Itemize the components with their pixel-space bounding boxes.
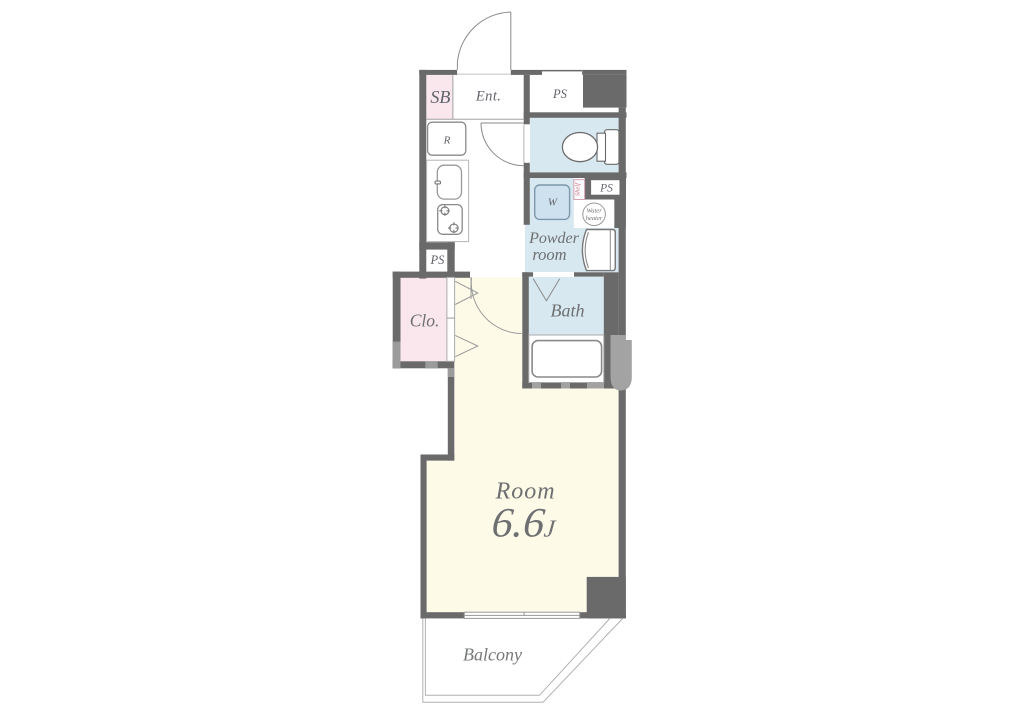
svg-text:Water: Water (586, 207, 602, 214)
svg-text:room: room (532, 245, 566, 264)
svg-text:PS: PS (552, 87, 568, 101)
svg-text:PS: PS (599, 183, 613, 195)
svg-text:Balcony: Balcony (463, 644, 522, 664)
svg-text:Shelf: Shelf (574, 182, 581, 196)
svg-text:PS: PS (429, 253, 445, 267)
svg-text:Clo.: Clo. (410, 311, 440, 331)
svg-text:Bath: Bath (551, 301, 585, 321)
svg-text:W: W (548, 197, 558, 209)
svg-text:heater: heater (586, 215, 603, 222)
svg-text:R: R (443, 135, 451, 147)
svg-text:Ent.: Ent. (475, 88, 501, 104)
svg-text:SB: SB (430, 87, 450, 107)
